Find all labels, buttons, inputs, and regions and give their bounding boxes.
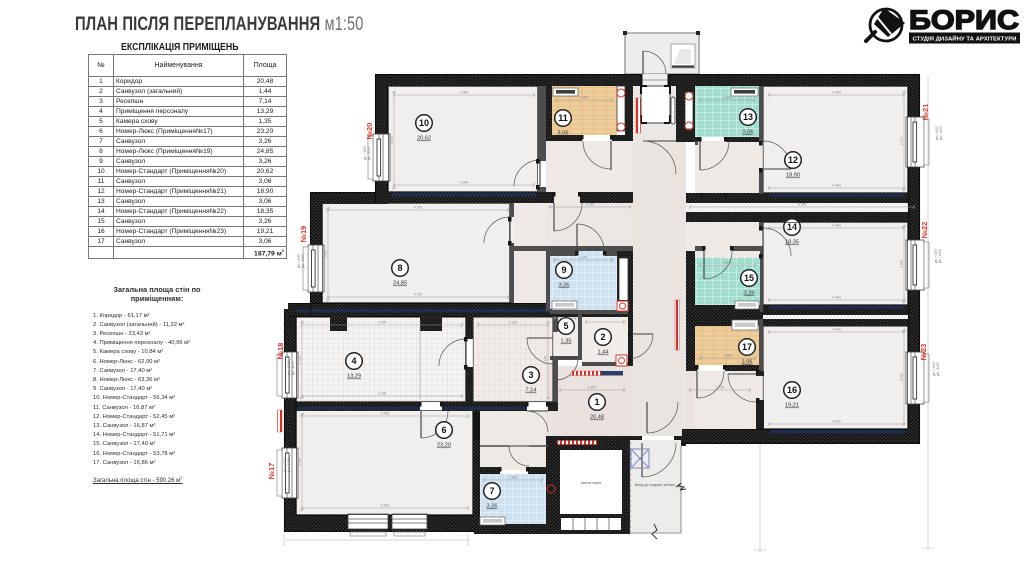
svg-text:№21: №21 bbox=[921, 104, 930, 121]
svg-text:3: 3 bbox=[528, 370, 533, 380]
svg-text:3,26: 3,26 bbox=[744, 291, 755, 297]
svg-text:2.490: 2.490 bbox=[381, 504, 390, 508]
svg-text:4.404: 4.404 bbox=[832, 91, 841, 95]
svg-text:1.860: 1.860 bbox=[723, 261, 732, 265]
svg-text:7: 7 bbox=[489, 486, 494, 496]
svg-text:1.730: 1.730 bbox=[298, 356, 302, 365]
svg-text:№17: №17 bbox=[267, 463, 276, 480]
svg-text:9: 9 bbox=[561, 265, 566, 275]
svg-text:1.135: 1.135 bbox=[378, 392, 387, 396]
svg-text:2.780: 2.780 bbox=[298, 458, 302, 467]
svg-text:4.700: 4.700 bbox=[414, 293, 423, 297]
svg-text:1.940: 1.940 bbox=[579, 256, 588, 260]
svg-text:12: 12 bbox=[788, 155, 798, 165]
svg-text:17: 17 bbox=[742, 342, 752, 352]
svg-text:15: 15 bbox=[744, 273, 754, 283]
svg-text:1.960: 1.960 bbox=[723, 96, 732, 100]
svg-text:3,26: 3,26 bbox=[487, 504, 498, 510]
svg-text:ум. -1453: ум. -1453 bbox=[301, 254, 305, 268]
svg-text:16: 16 bbox=[787, 385, 797, 395]
svg-text:3,06: 3,06 bbox=[742, 360, 753, 366]
svg-text:2.135: 2.135 bbox=[544, 356, 548, 365]
svg-text:1.807: 1.807 bbox=[588, 386, 597, 390]
svg-text:ум. -1453: ум. -1453 bbox=[936, 362, 940, 376]
svg-text:ум. -1453: ум. -1453 bbox=[938, 249, 942, 263]
svg-text:1.760: 1.760 bbox=[716, 386, 725, 390]
svg-text:БОРИС: БОРИС bbox=[909, 5, 1019, 35]
svg-text:1.860: 1.860 bbox=[723, 354, 732, 358]
svg-text:3.050: 3.050 bbox=[390, 136, 394, 145]
svg-text:4.064: 4.064 bbox=[460, 181, 469, 185]
svg-text:5: 5 bbox=[563, 321, 568, 331]
svg-text:20,48: 20,48 bbox=[590, 415, 604, 421]
svg-text:4.064: 4.064 bbox=[460, 91, 469, 95]
svg-text:4.440: 4.440 bbox=[832, 328, 841, 332]
svg-text:3,06: 3,06 bbox=[743, 130, 754, 136]
svg-text:24,85: 24,85 bbox=[393, 281, 407, 287]
svg-text:1,35: 1,35 bbox=[561, 339, 572, 345]
svg-text:Шахта ліфта: Шахта ліфта bbox=[581, 481, 601, 485]
svg-text:14: 14 bbox=[787, 222, 797, 232]
svg-text:13,29: 13,29 bbox=[347, 374, 361, 380]
svg-text:№23: №23 bbox=[919, 344, 928, 361]
svg-text:6: 6 bbox=[441, 425, 446, 435]
svg-text:3.060: 3.060 bbox=[900, 373, 904, 382]
svg-text:№20: №20 bbox=[365, 123, 374, 140]
svg-text:19,21: 19,21 bbox=[785, 403, 799, 409]
svg-text:2.030: 2.030 bbox=[586, 203, 595, 207]
svg-text:ум. -1453: ум. -1453 bbox=[291, 361, 295, 375]
svg-text:4.440: 4.440 bbox=[832, 420, 841, 424]
svg-text:ум. -1453: ум. -1453 bbox=[287, 458, 291, 472]
svg-text:2: 2 bbox=[600, 332, 605, 342]
svg-text:Вихід до сходової клітини: Вихід до сходової клітини bbox=[635, 483, 675, 487]
svg-text:20,62: 20,62 bbox=[417, 136, 431, 142]
svg-text:4.488: 4.488 bbox=[381, 412, 390, 416]
svg-text:2.930: 2.930 bbox=[378, 321, 387, 325]
svg-text:1: 1 bbox=[594, 397, 599, 407]
svg-text:1,44: 1,44 bbox=[598, 350, 609, 356]
svg-text:18,35: 18,35 bbox=[785, 240, 799, 246]
svg-text:3,06: 3,06 bbox=[558, 131, 569, 137]
svg-text:ум. -1453: ум. -1453 bbox=[939, 126, 943, 140]
svg-text:4.404: 4.404 bbox=[832, 296, 841, 300]
svg-text:8: 8 bbox=[397, 263, 402, 273]
svg-text:№19: №19 bbox=[299, 226, 308, 243]
svg-text:СТУДІЯ ДИЗАЙНУ ТА АРХІТЕКТУРИ: СТУДІЯ ДИЗАЙНУ ТА АРХІТЕКТУРИ bbox=[913, 35, 1017, 43]
svg-text:2.100: 2.100 bbox=[509, 321, 518, 325]
svg-text:4.404: 4.404 bbox=[832, 184, 841, 188]
svg-text:5.950: 5.950 bbox=[798, 203, 807, 207]
svg-text:1.960: 1.960 bbox=[580, 96, 589, 100]
svg-text:23,20: 23,20 bbox=[437, 443, 451, 449]
svg-text:3.140: 3.140 bbox=[900, 260, 904, 269]
svg-text:2.800: 2.800 bbox=[324, 250, 328, 259]
svg-text:13: 13 bbox=[743, 112, 753, 122]
svg-text:№22: №22 bbox=[920, 222, 929, 239]
svg-text:11: 11 bbox=[558, 113, 568, 123]
svg-text:18,90: 18,90 bbox=[786, 173, 800, 179]
svg-text:3,26: 3,26 bbox=[559, 283, 570, 289]
svg-text:3.100: 3.100 bbox=[900, 137, 904, 146]
svg-text:ум. -1453: ум. -1453 bbox=[367, 146, 371, 160]
svg-text:№18: №18 bbox=[276, 343, 285, 360]
svg-text:10: 10 bbox=[419, 118, 429, 128]
svg-text:4.700: 4.700 bbox=[414, 206, 423, 210]
svg-text:4: 4 bbox=[351, 356, 356, 366]
svg-text:4.404: 4.404 bbox=[832, 224, 841, 228]
svg-text:1.680: 1.680 bbox=[509, 476, 518, 480]
svg-text:7,14: 7,14 bbox=[526, 388, 537, 394]
